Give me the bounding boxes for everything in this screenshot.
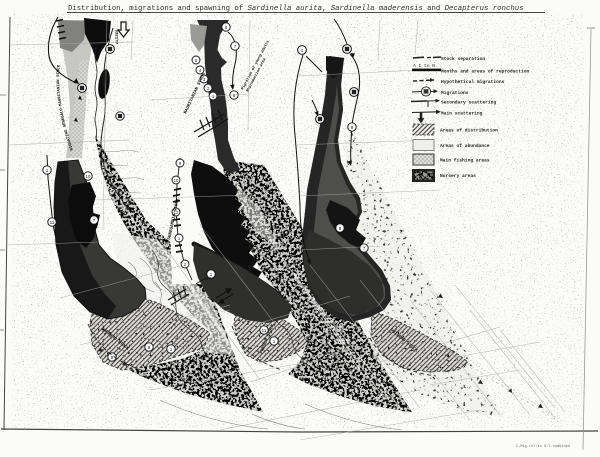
- svg-text:11: 11: [50, 220, 55, 225]
- svg-text:Distribution, migrations and s: Distribution, migrations and spawning of…: [68, 5, 523, 13]
- svg-text:11: 11: [262, 328, 267, 333]
- svg-text:Areas of distribution: Areas of distribution: [440, 128, 498, 134]
- svg-text:A I to N: A I to N: [413, 63, 435, 69]
- svg-text:Stock separation: Stock separation: [441, 56, 485, 62]
- svg-text:ALIZES: ALIZES: [116, 29, 120, 44]
- svg-text:Areas of abundance: Areas of abundance: [440, 143, 490, 149]
- svg-text:10: 10: [174, 178, 179, 183]
- svg-text:Secondary scattering: Secondary scattering: [441, 100, 496, 106]
- svg-text:10: 10: [85, 174, 91, 179]
- svg-text:Main scattering: Main scattering: [441, 111, 483, 117]
- svg-text:Migrations: Migrations: [441, 90, 469, 96]
- svg-text:Hypothetical migrations: Hypothetical migrations: [441, 79, 505, 85]
- svg-text:Nursery areas: Nursery areas: [440, 173, 476, 179]
- svg-text:Months and areas of reproducti: Months and areas of reproduction: [441, 69, 529, 75]
- svg-text:Main fishing areas: Main fishing areas: [440, 158, 490, 164]
- svg-text:C.Mig.rel.to S.l.combined: C.Mig.rel.to S.l.combined: [516, 444, 570, 449]
